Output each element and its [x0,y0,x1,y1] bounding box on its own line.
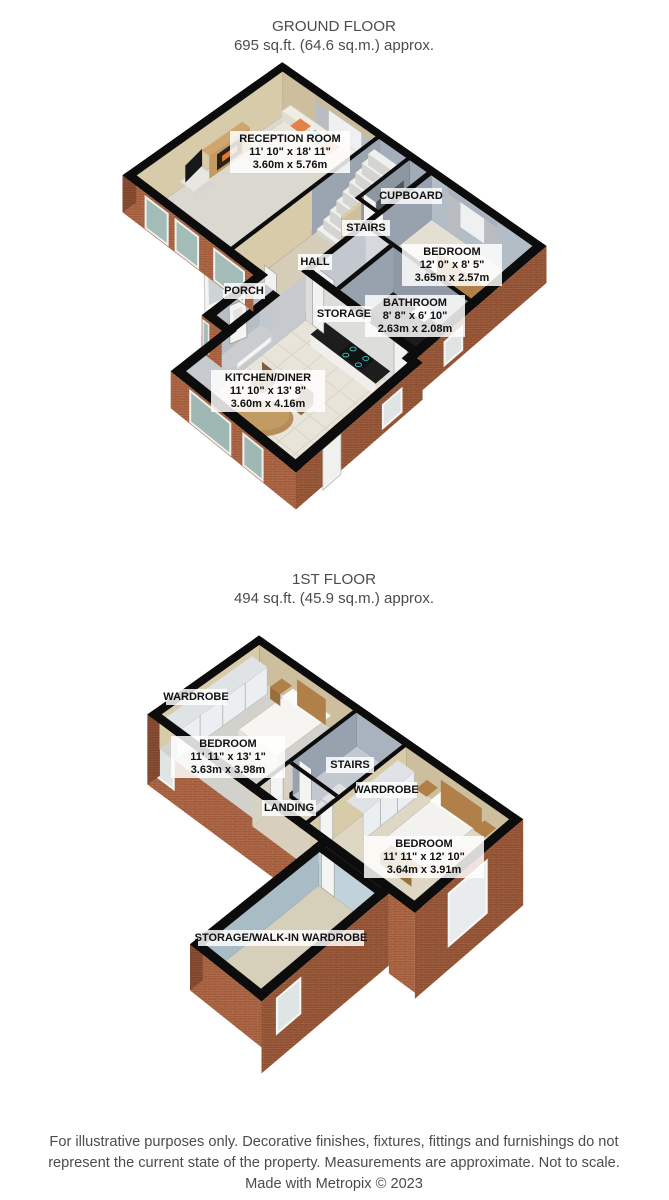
svg-text:STORAGE: STORAGE [317,308,371,320]
svg-text:1ST FLOOR: 1ST FLOOR [292,571,376,588]
svg-text:BATHROOM: BATHROOM [383,297,447,309]
svg-text:BEDROOM: BEDROOM [199,738,256,750]
svg-text:3.60m x 5.76m: 3.60m x 5.76m [253,159,328,171]
svg-text:11' 11" x 12' 10": 11' 11" x 12' 10" [383,851,465,863]
svg-text:KITCHEN/DINER: KITCHEN/DINER [225,372,311,384]
svg-text:WARDROBE: WARDROBE [163,691,228,703]
svg-text:GROUND FLOOR: GROUND FLOOR [272,18,396,35]
svg-text:8' 8" x 6' 10": 8' 8" x 6' 10" [383,310,448,322]
svg-text:3.60m x 4.16m: 3.60m x 4.16m [231,398,306,410]
svg-text:11' 10" x 18' 11": 11' 10" x 18' 11" [249,146,331,158]
svg-text:represent the current state of: represent the current state of the prope… [48,1155,620,1171]
svg-text:11' 10" x 13' 8": 11' 10" x 13' 8" [230,385,306,397]
svg-text:BEDROOM: BEDROOM [423,246,480,258]
svg-text:11' 11" x 13' 1": 11' 11" x 13' 1" [190,751,266,763]
svg-text:STAIRS: STAIRS [346,222,386,234]
svg-text:Made with Metropix © 2023: Made with Metropix © 2023 [245,1176,423,1192]
svg-text:STORAGE/WALK-IN WARDROBE: STORAGE/WALK-IN WARDROBE [195,932,368,944]
svg-text:3.64m x 3.91m: 3.64m x 3.91m [387,864,462,876]
svg-text:CUPBOARD: CUPBOARD [379,190,443,202]
svg-text:STAIRS: STAIRS [330,759,370,771]
svg-text:PORCH: PORCH [224,285,264,297]
svg-text:12' 0" x 8' 5": 12' 0" x 8' 5" [420,259,485,271]
svg-text:BEDROOM: BEDROOM [395,838,452,850]
svg-text:WARDROBE: WARDROBE [353,784,418,796]
svg-text:HALL: HALL [300,256,330,268]
svg-text:LANDING: LANDING [264,802,314,814]
svg-text:RECEPTION ROOM: RECEPTION ROOM [239,133,340,145]
svg-text:695 sq.ft. (64.6 sq.m.) approx: 695 sq.ft. (64.6 sq.m.) approx. [234,37,434,54]
svg-text:3.63m x 3.98m: 3.63m x 3.98m [191,764,266,776]
svg-text:2.63m x 2.08m: 2.63m x 2.08m [378,323,453,335]
svg-text:3.65m x 2.57m: 3.65m x 2.57m [415,272,490,284]
svg-text:494 sq.ft. (45.9 sq.m.) approx: 494 sq.ft. (45.9 sq.m.) approx. [234,590,434,607]
svg-text:For illustrative purposes only: For illustrative purposes only. Decorati… [49,1134,618,1150]
